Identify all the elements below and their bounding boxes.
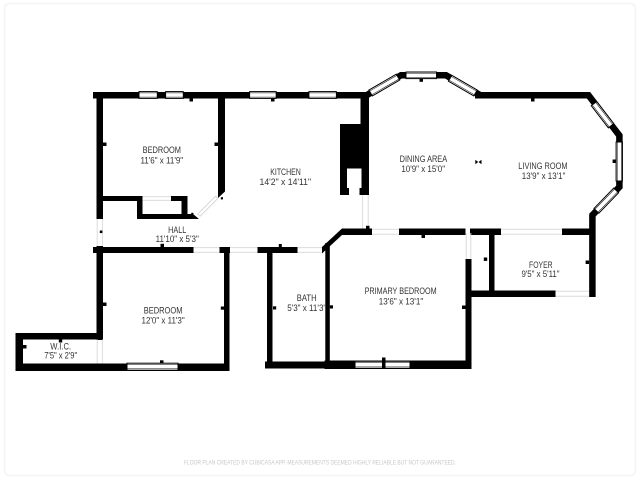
svg-text:BEDROOM: BEDROOM xyxy=(144,305,183,315)
svg-text:BATH: BATH xyxy=(297,293,317,303)
svg-text:7'5" x 2'9": 7'5" x 2'9" xyxy=(44,350,77,360)
svg-text:11'10" x 5'3": 11'10" x 5'3" xyxy=(156,234,199,244)
svg-text:14'2" x 14'11": 14'2" x 14'11" xyxy=(260,177,312,187)
svg-text:BEDROOM: BEDROOM xyxy=(143,145,181,155)
svg-text:11'6" x 11'9": 11'6" x 11'9" xyxy=(140,156,183,166)
svg-text:LIVING ROOM: LIVING ROOM xyxy=(518,161,567,171)
svg-text:13'6" x 13'1": 13'6" x 13'1" xyxy=(379,297,424,307)
svg-text:FLOOR PLAN CREATED BY CUBICASA: FLOOR PLAN CREATED BY CUBICASA APP. MEAS… xyxy=(184,460,456,467)
svg-text:12'0" x 11'3": 12'0" x 11'3" xyxy=(142,316,185,326)
svg-text:10'9" x 15'0": 10'9" x 15'0" xyxy=(401,164,445,174)
svg-text:DINING AREA: DINING AREA xyxy=(400,154,448,164)
svg-text:5'3" x 11'3": 5'3" x 11'3" xyxy=(287,303,326,313)
svg-text:PRIMARY BEDROOM: PRIMARY BEDROOM xyxy=(365,286,437,296)
svg-text:13'9" x 13'1": 13'9" x 13'1" xyxy=(522,171,566,181)
svg-text:KITCHEN: KITCHEN xyxy=(270,167,301,177)
svg-text:9'5" x 5'11": 9'5" x 5'11" xyxy=(521,269,559,279)
